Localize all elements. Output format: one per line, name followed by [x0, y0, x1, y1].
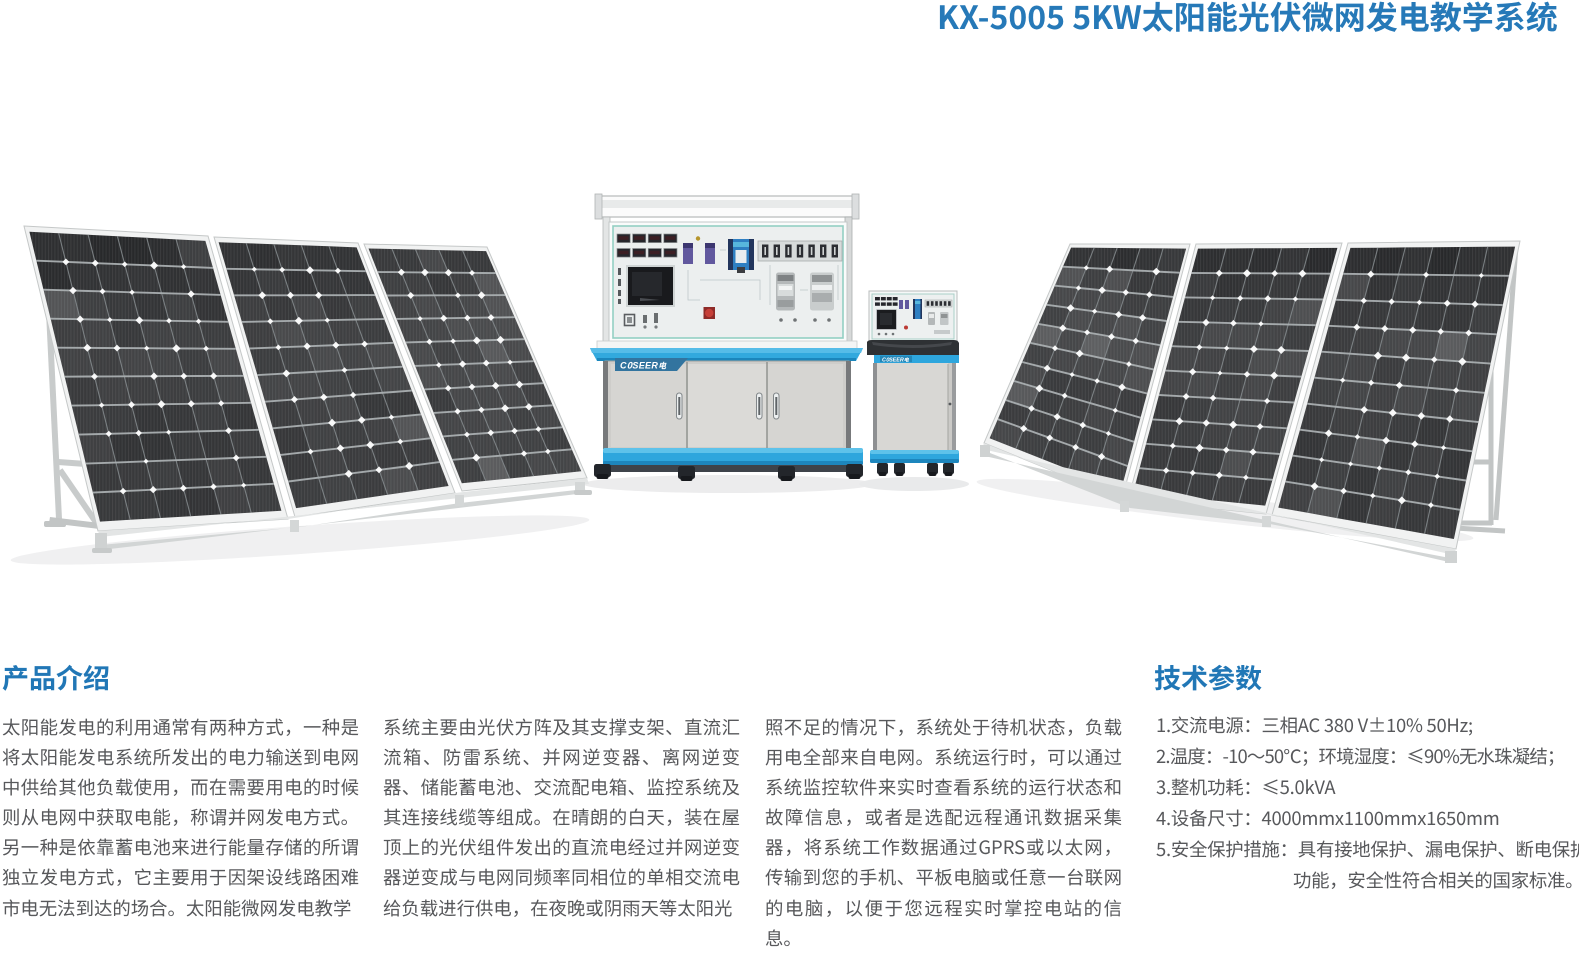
svg-text:C0SEER电: C0SEER电	[882, 356, 910, 364]
svg-text:C0SEER电: C0SEER电	[620, 359, 667, 372]
